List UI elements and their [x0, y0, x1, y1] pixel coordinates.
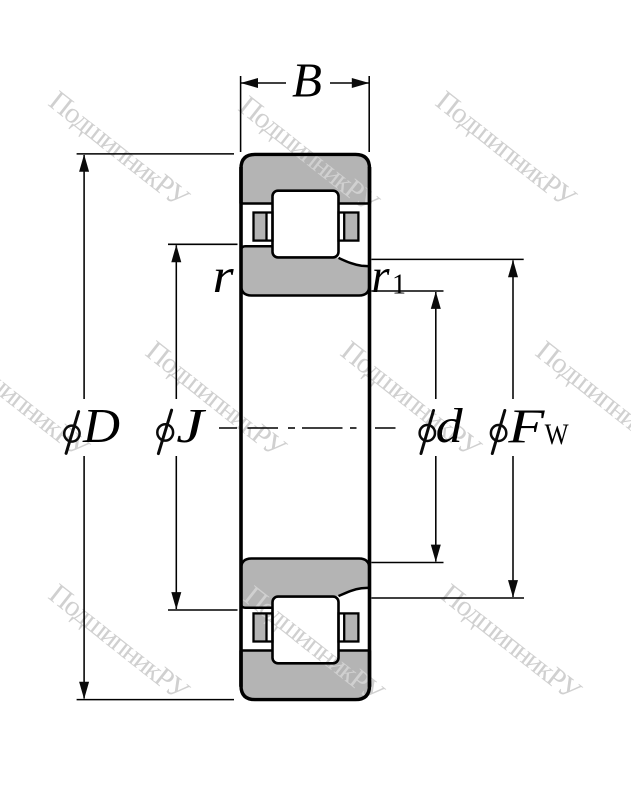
svg-text:r: r — [213, 248, 235, 303]
svg-text:d: d — [436, 398, 464, 453]
svg-text:F: F — [507, 399, 545, 454]
svg-text:1: 1 — [392, 270, 406, 301]
svg-text:J: J — [176, 398, 206, 453]
svg-text:D: D — [82, 398, 120, 453]
svg-text:r: r — [372, 248, 391, 303]
svg-text:W: W — [545, 418, 570, 451]
svg-text:B: B — [292, 52, 322, 107]
